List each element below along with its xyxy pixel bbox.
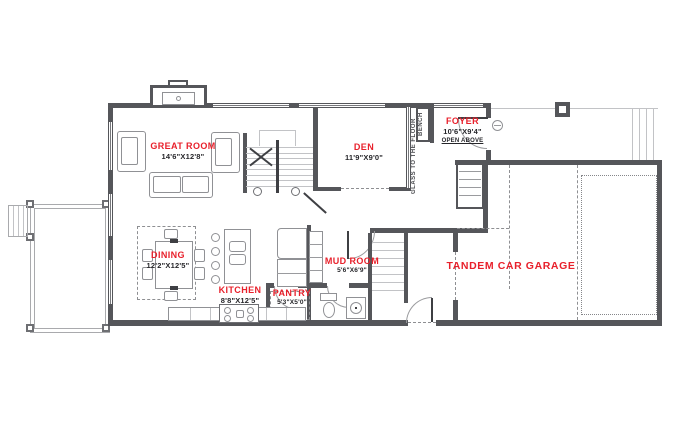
wall-powder-north-b xyxy=(349,283,370,288)
table-leaf xyxy=(170,286,178,290)
closet-shelf xyxy=(459,179,481,180)
powder-sink-drain xyxy=(355,307,357,309)
stair-rail xyxy=(295,130,296,146)
stair-rail xyxy=(259,130,296,131)
stair-newel xyxy=(253,187,262,196)
stair-tread xyxy=(246,147,314,148)
porch-post xyxy=(555,102,570,117)
room-dims: 14'6"X12'8" xyxy=(123,152,243,161)
cabinet-divider xyxy=(190,308,191,320)
deck-step-line xyxy=(13,206,14,236)
label-great-room: GREAT ROOM 14'6"X12'8" xyxy=(123,141,243,161)
stair-tread xyxy=(246,175,314,176)
room-name: TANDEM CAR GARAGE xyxy=(441,260,581,273)
cabinet-divider xyxy=(286,308,287,320)
window-top-1 xyxy=(213,103,289,108)
floor-plan: GLASS TO THE FLOOR BENCH xyxy=(0,0,675,430)
deck-post xyxy=(26,324,34,332)
room-name: DINING xyxy=(133,250,203,261)
garage-ceiling-line xyxy=(457,228,509,229)
label-mud-room: MUD ROOM 5'6"X6'9" xyxy=(312,256,392,275)
range-burner xyxy=(247,315,254,322)
porch-step-line xyxy=(646,109,647,160)
cabinet-divider xyxy=(266,308,267,320)
stair-stringer xyxy=(276,140,279,193)
back-door-arc xyxy=(406,297,432,323)
foyer-closet xyxy=(456,163,484,209)
island-sink xyxy=(229,254,246,265)
bsmt-stair-tread xyxy=(372,250,404,251)
window-top-2 xyxy=(299,103,385,108)
dining-chair xyxy=(164,229,178,239)
deck-rail-inner xyxy=(34,208,106,329)
porch-step-line xyxy=(653,109,654,160)
island-sink xyxy=(229,241,246,252)
range-burner xyxy=(247,307,254,314)
bar-stool xyxy=(211,233,220,242)
window-left-2 xyxy=(108,194,113,236)
porch-step-line xyxy=(632,109,633,160)
bar-stool xyxy=(211,261,220,270)
bar-stool xyxy=(211,275,220,284)
wall-garage-west-b xyxy=(453,300,458,322)
range-burner xyxy=(224,307,231,314)
stair-tread xyxy=(246,169,314,170)
room-name: DEN xyxy=(324,142,404,153)
wall-den-bottom-a xyxy=(313,187,341,191)
room-name: PANTRY xyxy=(266,288,318,299)
range-center xyxy=(236,310,244,318)
deck-step-line xyxy=(23,206,24,236)
room-name: GREAT ROOM xyxy=(123,141,243,152)
room-dims: 12'2"X12'5" xyxy=(133,261,203,270)
wall-stair-left xyxy=(243,133,247,193)
closet-shelf xyxy=(459,187,481,188)
garage-ceiling-line xyxy=(577,165,579,320)
closet-shelf xyxy=(459,195,481,196)
glass-to-floor-note: GLASS TO THE FLOOR xyxy=(411,134,421,194)
sofa-cushion xyxy=(153,176,181,193)
range-burner xyxy=(224,315,231,322)
fridge xyxy=(277,228,307,259)
fireplace-knob xyxy=(176,96,181,101)
garage-opening-above xyxy=(581,175,657,315)
wall-bsmt-stair-west xyxy=(368,233,372,322)
cabinet-divider xyxy=(210,308,211,320)
room-name: MUD ROOM xyxy=(312,256,392,267)
sofa-cushion xyxy=(182,176,209,193)
wall-garage-west-upper xyxy=(483,163,488,233)
open-above-note: OPEN ABOVE xyxy=(425,138,500,145)
room-dims: 10'6"X9'4" xyxy=(425,127,500,136)
label-foyer: FOYER 10'6"X9'4" OPEN ABOVE xyxy=(425,116,500,145)
label-den: DEN 11'9"X9'0" xyxy=(324,142,404,162)
label-garage: TANDEM CAR GARAGE xyxy=(441,260,581,273)
stair-tread xyxy=(246,164,314,165)
deck-step-line xyxy=(18,206,19,236)
wall-garage-west-a xyxy=(453,233,458,252)
stair-newel xyxy=(291,187,300,196)
label-dining: DINING 12'2"X12'5" xyxy=(133,250,203,270)
stair-tread xyxy=(246,180,314,181)
window-left-1 xyxy=(108,122,113,170)
bsmt-stair-tread xyxy=(372,290,404,291)
bsmt-stair-tread xyxy=(372,282,404,283)
toilet-tank xyxy=(320,293,337,301)
closet-shelf xyxy=(459,171,481,172)
wall-den-left xyxy=(313,107,318,190)
bsmt-stair-tread xyxy=(372,242,404,243)
toilet-bowl xyxy=(323,302,335,318)
locker-divider xyxy=(309,244,323,245)
hall-door-leaf xyxy=(303,192,327,214)
table-leaf xyxy=(170,239,178,243)
bar-stool xyxy=(211,247,220,256)
wall-garage-right xyxy=(657,160,662,326)
room-dims: 5'3"X5'0" xyxy=(266,299,318,307)
porch-step-line xyxy=(639,109,640,160)
wall-bsmt-stair-east xyxy=(404,233,408,303)
den-cased-opening xyxy=(341,188,389,189)
stair-rail xyxy=(259,130,260,146)
room-name: FOYER xyxy=(425,116,500,127)
window-left-3 xyxy=(108,260,113,304)
label-pantry: PANTRY 5'3"X5'0" xyxy=(266,288,318,307)
window-top-foyer xyxy=(431,103,483,108)
room-dims: 11'9"X9'0" xyxy=(324,153,404,162)
room-dims: 5'6"X6'9" xyxy=(312,267,392,275)
cabinet-line xyxy=(277,273,307,274)
dining-chair xyxy=(164,291,178,301)
